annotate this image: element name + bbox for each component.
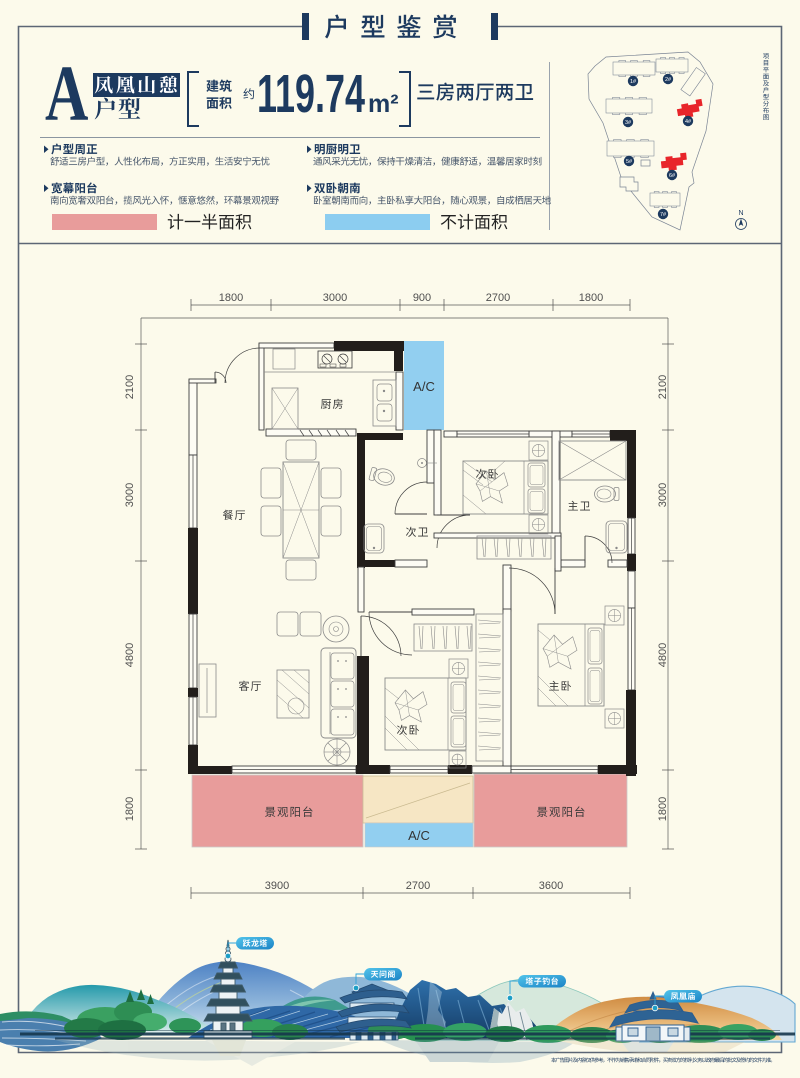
svg-text:3000: 3000 [124, 483, 136, 507]
svg-text:4#: 4# [685, 119, 692, 125]
svg-text:6#: 6# [669, 173, 676, 179]
svg-text:900: 900 [413, 292, 431, 304]
svg-text:A/C: A/C [413, 379, 435, 394]
svg-text:A/C: A/C [408, 828, 430, 843]
svg-text:2700: 2700 [406, 880, 430, 892]
svg-text:3000: 3000 [657, 483, 669, 507]
svg-text:2100: 2100 [124, 375, 136, 399]
svg-text:N: N [738, 210, 743, 217]
svg-text:1800: 1800 [219, 292, 243, 304]
svg-text:1800: 1800 [124, 797, 136, 821]
svg-text:3900: 3900 [265, 880, 289, 892]
svg-text:3600: 3600 [539, 880, 563, 892]
svg-text:2700: 2700 [486, 292, 510, 304]
svg-text:1800: 1800 [579, 292, 603, 304]
svg-text:A: A [45, 50, 89, 138]
svg-text:3000: 3000 [323, 292, 347, 304]
svg-text:4800: 4800 [657, 643, 669, 667]
svg-text:1#: 1# [630, 79, 637, 85]
svg-text:119.74: 119.74 [257, 64, 365, 124]
svg-text:2#: 2# [665, 77, 672, 83]
svg-text:1800: 1800 [657, 797, 669, 821]
svg-text:3#: 3# [625, 120, 632, 126]
svg-text:4800: 4800 [124, 643, 136, 667]
svg-text:m²: m² [368, 90, 399, 118]
svg-text:7#: 7# [660, 212, 667, 218]
svg-text:5#: 5# [626, 159, 633, 165]
svg-text:2100: 2100 [657, 375, 669, 399]
